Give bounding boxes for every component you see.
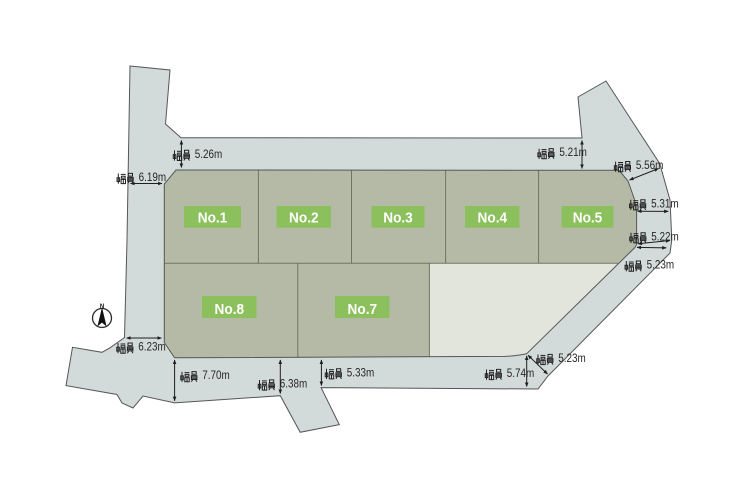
svg-text:No.3: No.3 [383, 210, 413, 226]
svg-text:6.23m: 6.23m [138, 341, 166, 354]
svg-text:5.26m: 5.26m [195, 148, 223, 161]
svg-text:6.38m: 6.38m [280, 378, 308, 391]
svg-text:No.2: No.2 [289, 210, 319, 226]
svg-text:No.7: No.7 [348, 302, 378, 318]
svg-text:5.31m: 5.31m [651, 197, 679, 210]
svg-text:5.21m: 5.21m [559, 146, 587, 159]
svg-text:5.23m: 5.23m [558, 352, 586, 365]
svg-text:No.4: No.4 [478, 210, 508, 226]
svg-text:5.56m: 5.56m [636, 159, 664, 172]
svg-text:5.23m: 5.23m [647, 259, 675, 272]
svg-text:5.33m: 5.33m [347, 366, 375, 379]
svg-text:No.5: No.5 [573, 210, 603, 226]
svg-text:No.8: No.8 [215, 302, 245, 318]
svg-text:5.74m: 5.74m [507, 367, 535, 380]
svg-text:5.22m: 5.22m [651, 230, 679, 243]
svg-text:No.1: No.1 [198, 210, 228, 226]
svg-text:6.19m: 6.19m [139, 171, 167, 184]
svg-text:N: N [100, 304, 104, 310]
svg-text:7.70m: 7.70m [202, 369, 230, 382]
